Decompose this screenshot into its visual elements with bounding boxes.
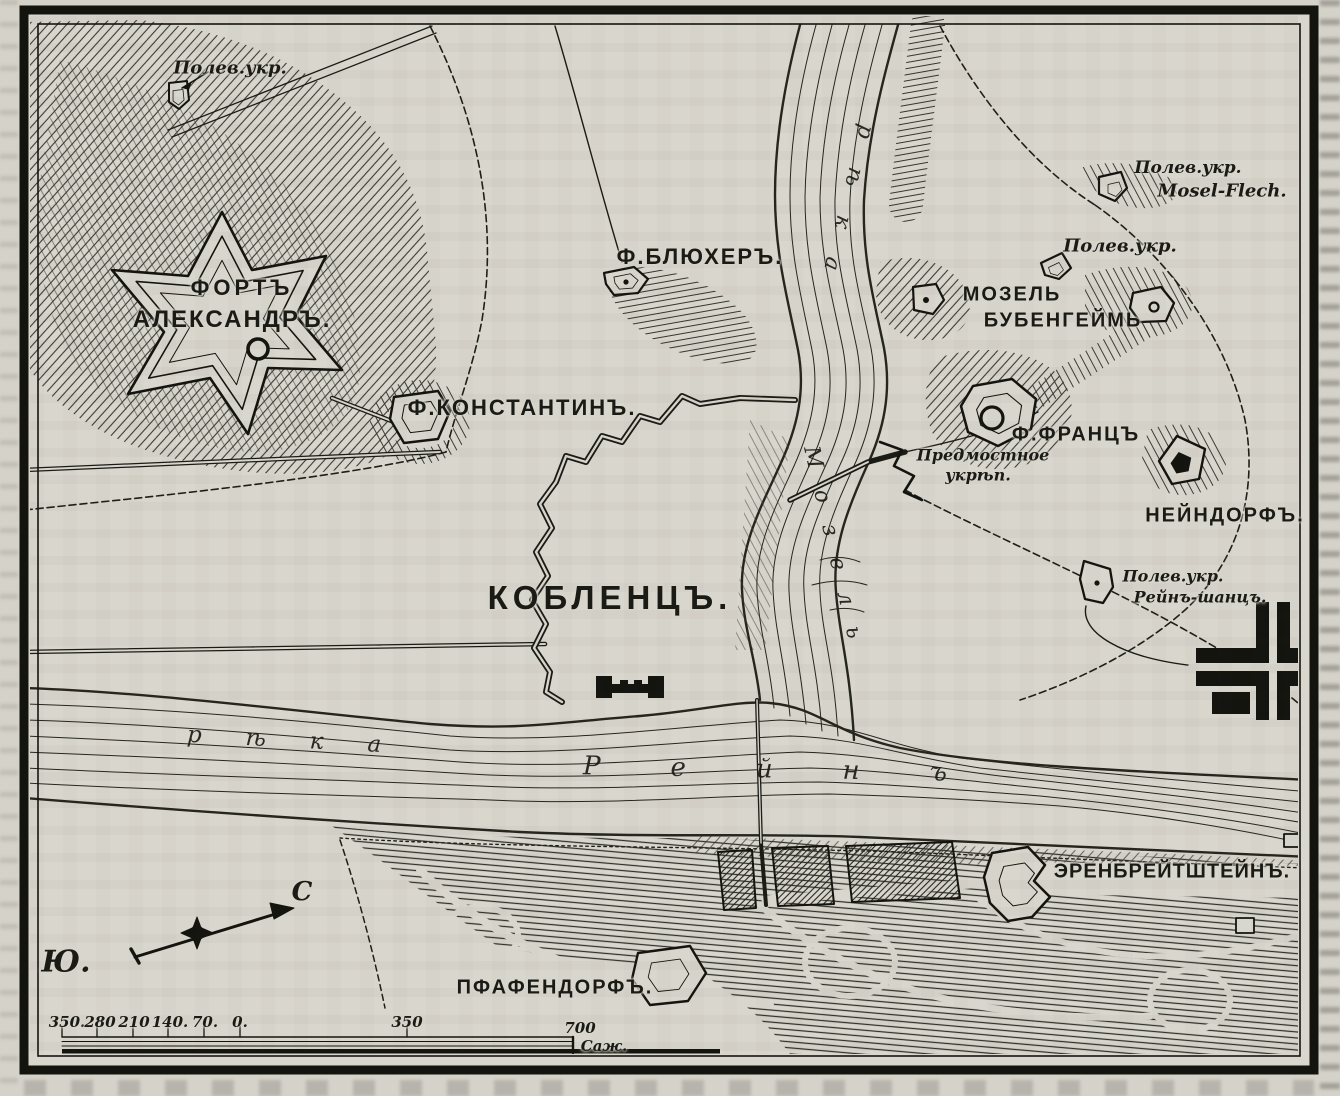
scale-tick-140: 140. [152, 1013, 189, 1031]
scale-tick-350r: 350 [391, 1013, 422, 1031]
map-page: Полев.укр. ФОРТЪ АЛЕКСАНДРЪ. Ф.БЛЮХЕРЪ. … [0, 0, 1340, 1096]
label-compass-north: С [292, 877, 313, 907]
label-pfaffendorf: ПФАФЕНДОРФЪ. [457, 977, 654, 1000]
scale-tick-210: 210 [118, 1013, 149, 1031]
label-mosel-flech-2: Mosel-Flech. [1157, 181, 1286, 202]
label-mosel-bubenheim-1: МОЗЕЛЬ [963, 284, 1062, 307]
label-rhein-schanze-2: Рейнъ-шанцъ. [1134, 588, 1267, 607]
rhein-schanze-symbol [1080, 561, 1113, 603]
label-ehrenbreitstein: ЭРЕНБРЕЙТШТЕЙНЪ. [1054, 861, 1290, 884]
label-fort-franz: Ф.ФРАНЦЪ [1012, 424, 1140, 447]
scale-tick-700: 700 [564, 1019, 595, 1037]
label-mosel-bubenheim-2: БУБЕНГЕЙМЬ [984, 310, 1143, 333]
scale-tick-280: 280 [84, 1013, 115, 1031]
small-redoubt-symbol [1236, 918, 1254, 933]
label-fort-alexander-1: ФОРТЪ [191, 275, 294, 301]
label-bridgehead-2: укрѣп. [945, 466, 1011, 485]
scale-tick-70: 70. [192, 1013, 218, 1031]
label-fort-alexander-2: АЛЕКСАНДРЪ. [133, 306, 332, 334]
small-redoubt-symbol2 [1284, 834, 1300, 847]
label-compass-south: Ю. [41, 945, 90, 980]
label-neindorf: НЕЙНДОРФЪ. [1145, 505, 1305, 528]
label-fort-konstantin: Ф.КОНСТАНТИНЪ. [408, 395, 637, 421]
label-rhein-schanze-1: Полев.укр. [1123, 567, 1224, 586]
label-mosel-flech-1: Полев.укр. [1134, 158, 1241, 178]
scale-unit: Саж. [581, 1037, 627, 1055]
label-bridgehead-1: Предмостное [917, 446, 1050, 465]
label-fort-blucher: Ф.БЛЮХЕРЪ. [617, 244, 784, 270]
scale-tick-0: 0. [232, 1013, 248, 1031]
scale-tick-350l: 350. [49, 1013, 86, 1031]
label-fieldwork-nw: Полев.укр. [173, 58, 287, 79]
label-koblenz: КОБЛЕНЦЪ. [488, 579, 733, 617]
label-fieldwork-center: Полев.укр. [1063, 236, 1177, 257]
